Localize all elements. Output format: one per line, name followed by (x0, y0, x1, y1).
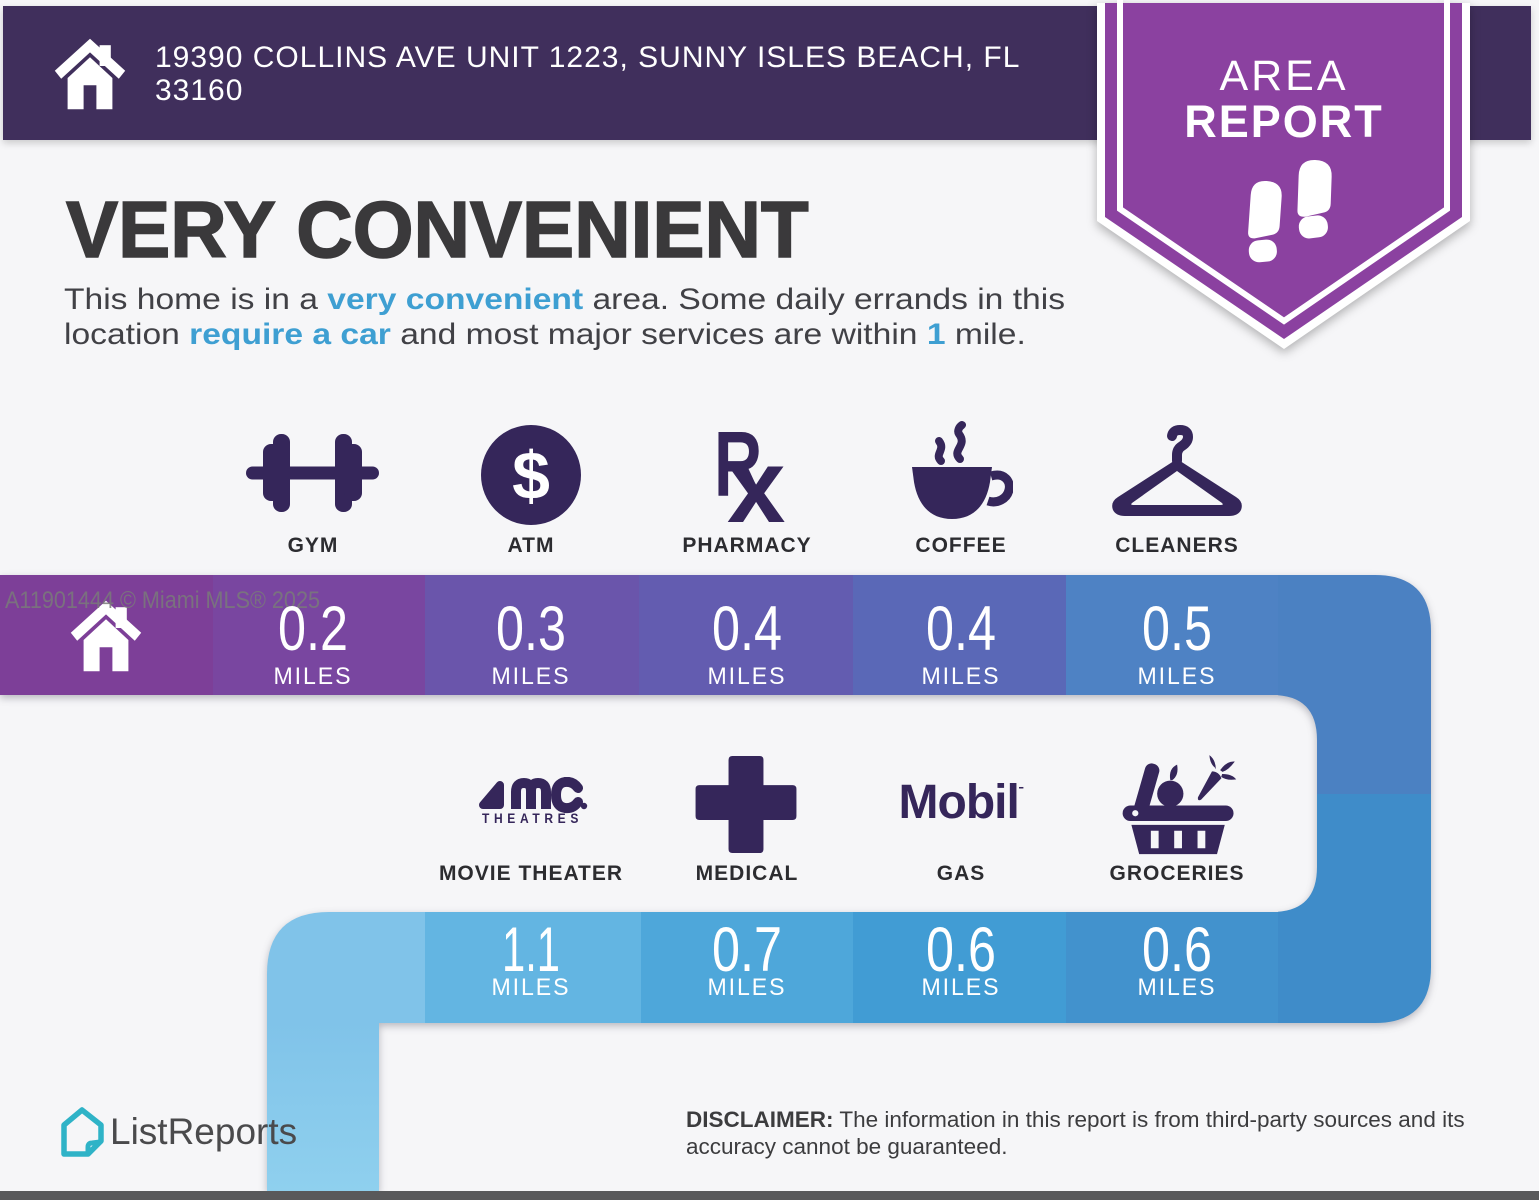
svg-text:MILES: MILES (492, 663, 571, 690)
svg-text:MILES: MILES (1138, 974, 1217, 1001)
svg-text:0.4: 0.4 (926, 594, 996, 664)
svg-text:THEATRES: THEATRES (482, 811, 583, 826)
svg-text:MILES: MILES (922, 974, 1001, 1001)
svg-text:MILES: MILES (1138, 663, 1217, 690)
svg-text:MILES: MILES (708, 974, 787, 1001)
svg-text:MILES: MILES (922, 663, 1001, 690)
svg-text:A11901444 © Miami MLS® 2025: A11901444 © Miami MLS® 2025 (5, 587, 320, 614)
svg-text:MILES: MILES (274, 663, 353, 690)
svg-text:0.4: 0.4 (712, 594, 782, 664)
svg-text:0.5: 0.5 (1142, 594, 1212, 664)
svg-text:$: $ (512, 438, 550, 514)
svg-text:MILES: MILES (492, 974, 571, 1001)
svg-text:x: x (727, 428, 785, 530)
svg-text:MILES: MILES (708, 663, 787, 690)
svg-text:0.2: 0.2 (278, 594, 348, 664)
svg-text:0.3: 0.3 (496, 594, 566, 664)
